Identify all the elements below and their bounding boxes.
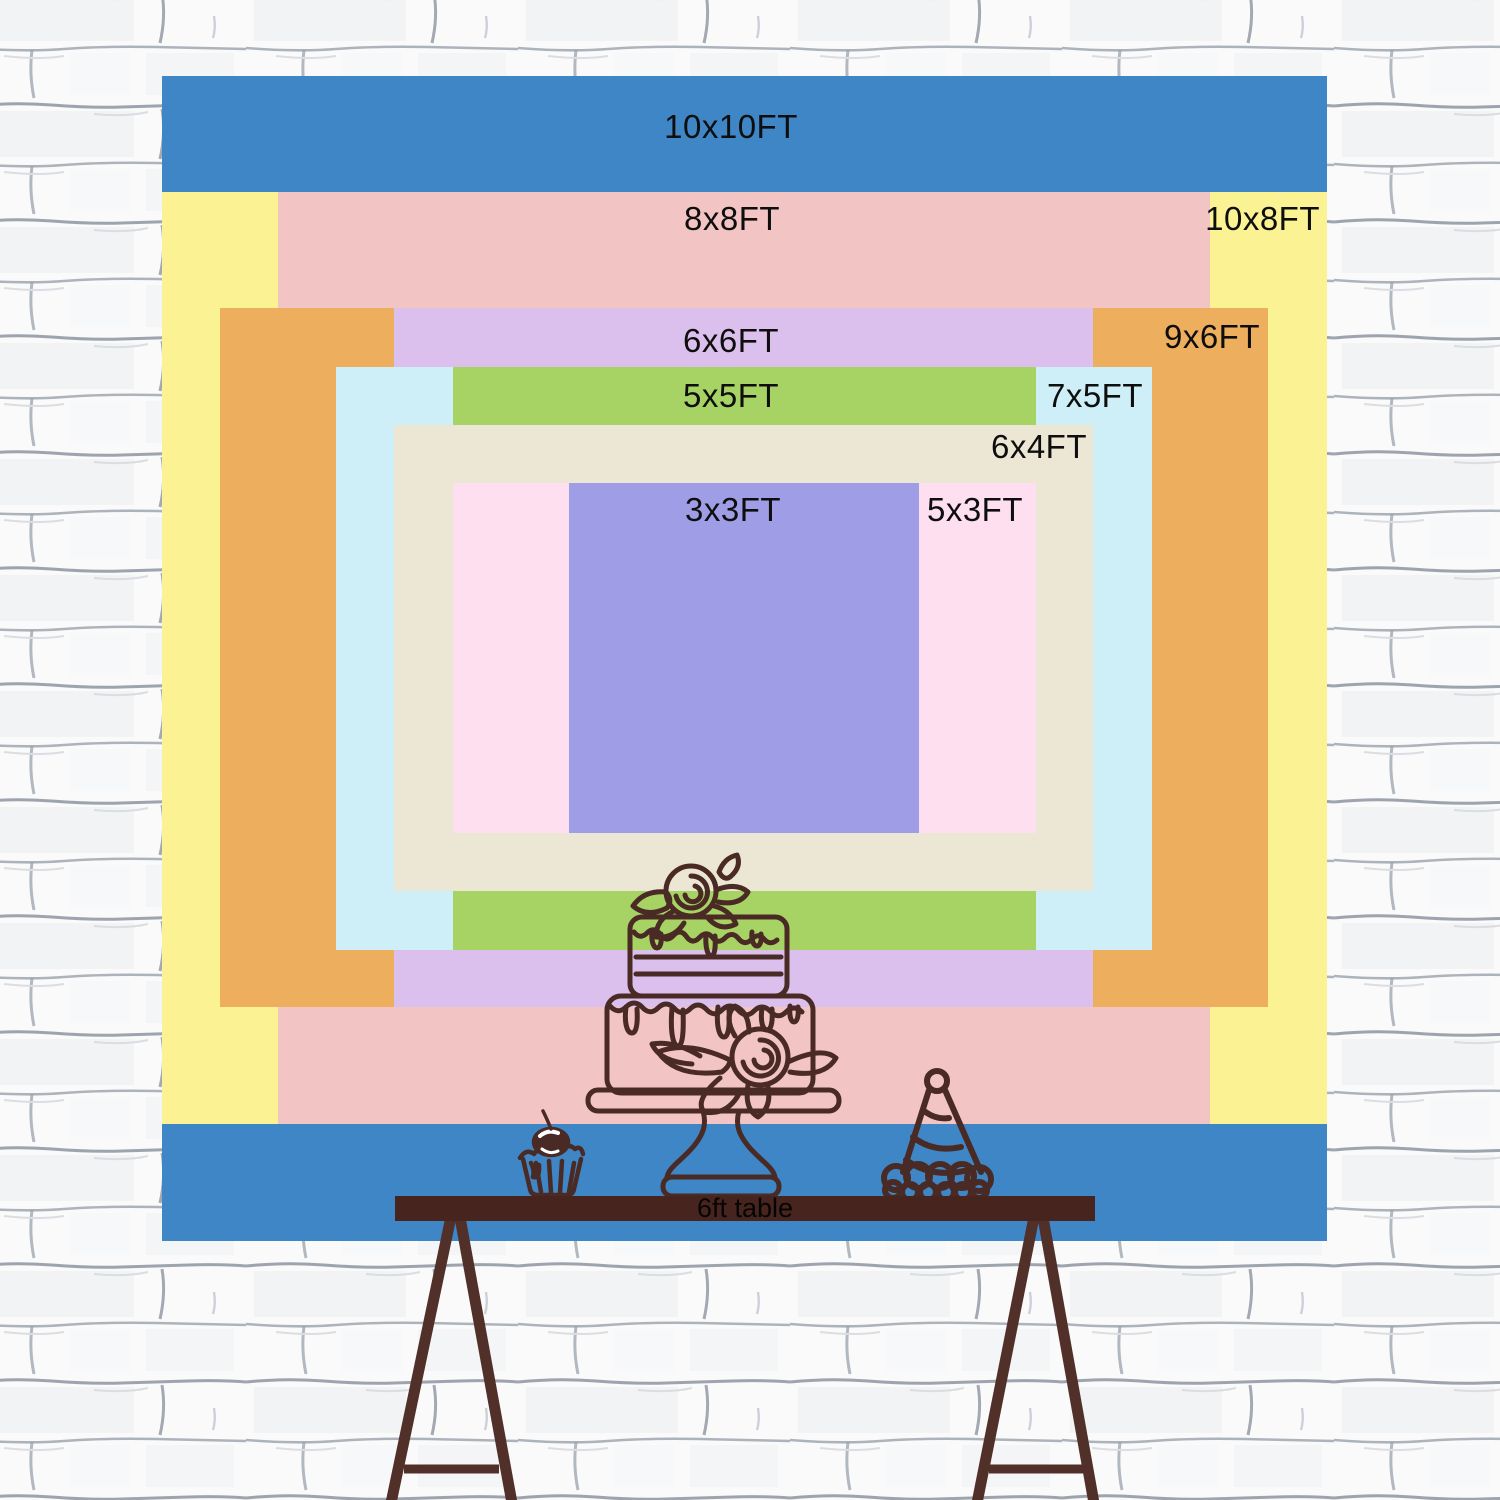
size-label-5x3: 5x3FT bbox=[927, 493, 1023, 526]
size-label-3x3: 3x3FT bbox=[685, 493, 781, 526]
size-label-6x6: 6x6FT bbox=[683, 324, 779, 357]
size-label-8x8: 8x8FT bbox=[684, 202, 780, 235]
size-label-5x5: 5x5FT bbox=[683, 379, 779, 412]
backdrop-size-chart: 10x10FT10x8FT8x8FT9x6FT6x6FT7x5FT5x5FT6x… bbox=[0, 0, 1500, 1500]
size-chart: 10x10FT10x8FT8x8FT9x6FT6x6FT7x5FT5x5FT6x… bbox=[0, 0, 1500, 1500]
table-top: 6ft table bbox=[395, 1196, 1095, 1221]
size-label-6x4: 6x4FT bbox=[991, 430, 1087, 463]
size-label-9x6: 9x6FT bbox=[1164, 320, 1260, 353]
size-rect-3x3 bbox=[569, 483, 919, 833]
size-label-10x8: 10x8FT bbox=[1205, 202, 1320, 235]
size-label-10x10: 10x10FT bbox=[664, 110, 798, 143]
table-label: 6ft table bbox=[697, 1195, 793, 1222]
size-label-7x5: 7x5FT bbox=[1047, 379, 1143, 412]
